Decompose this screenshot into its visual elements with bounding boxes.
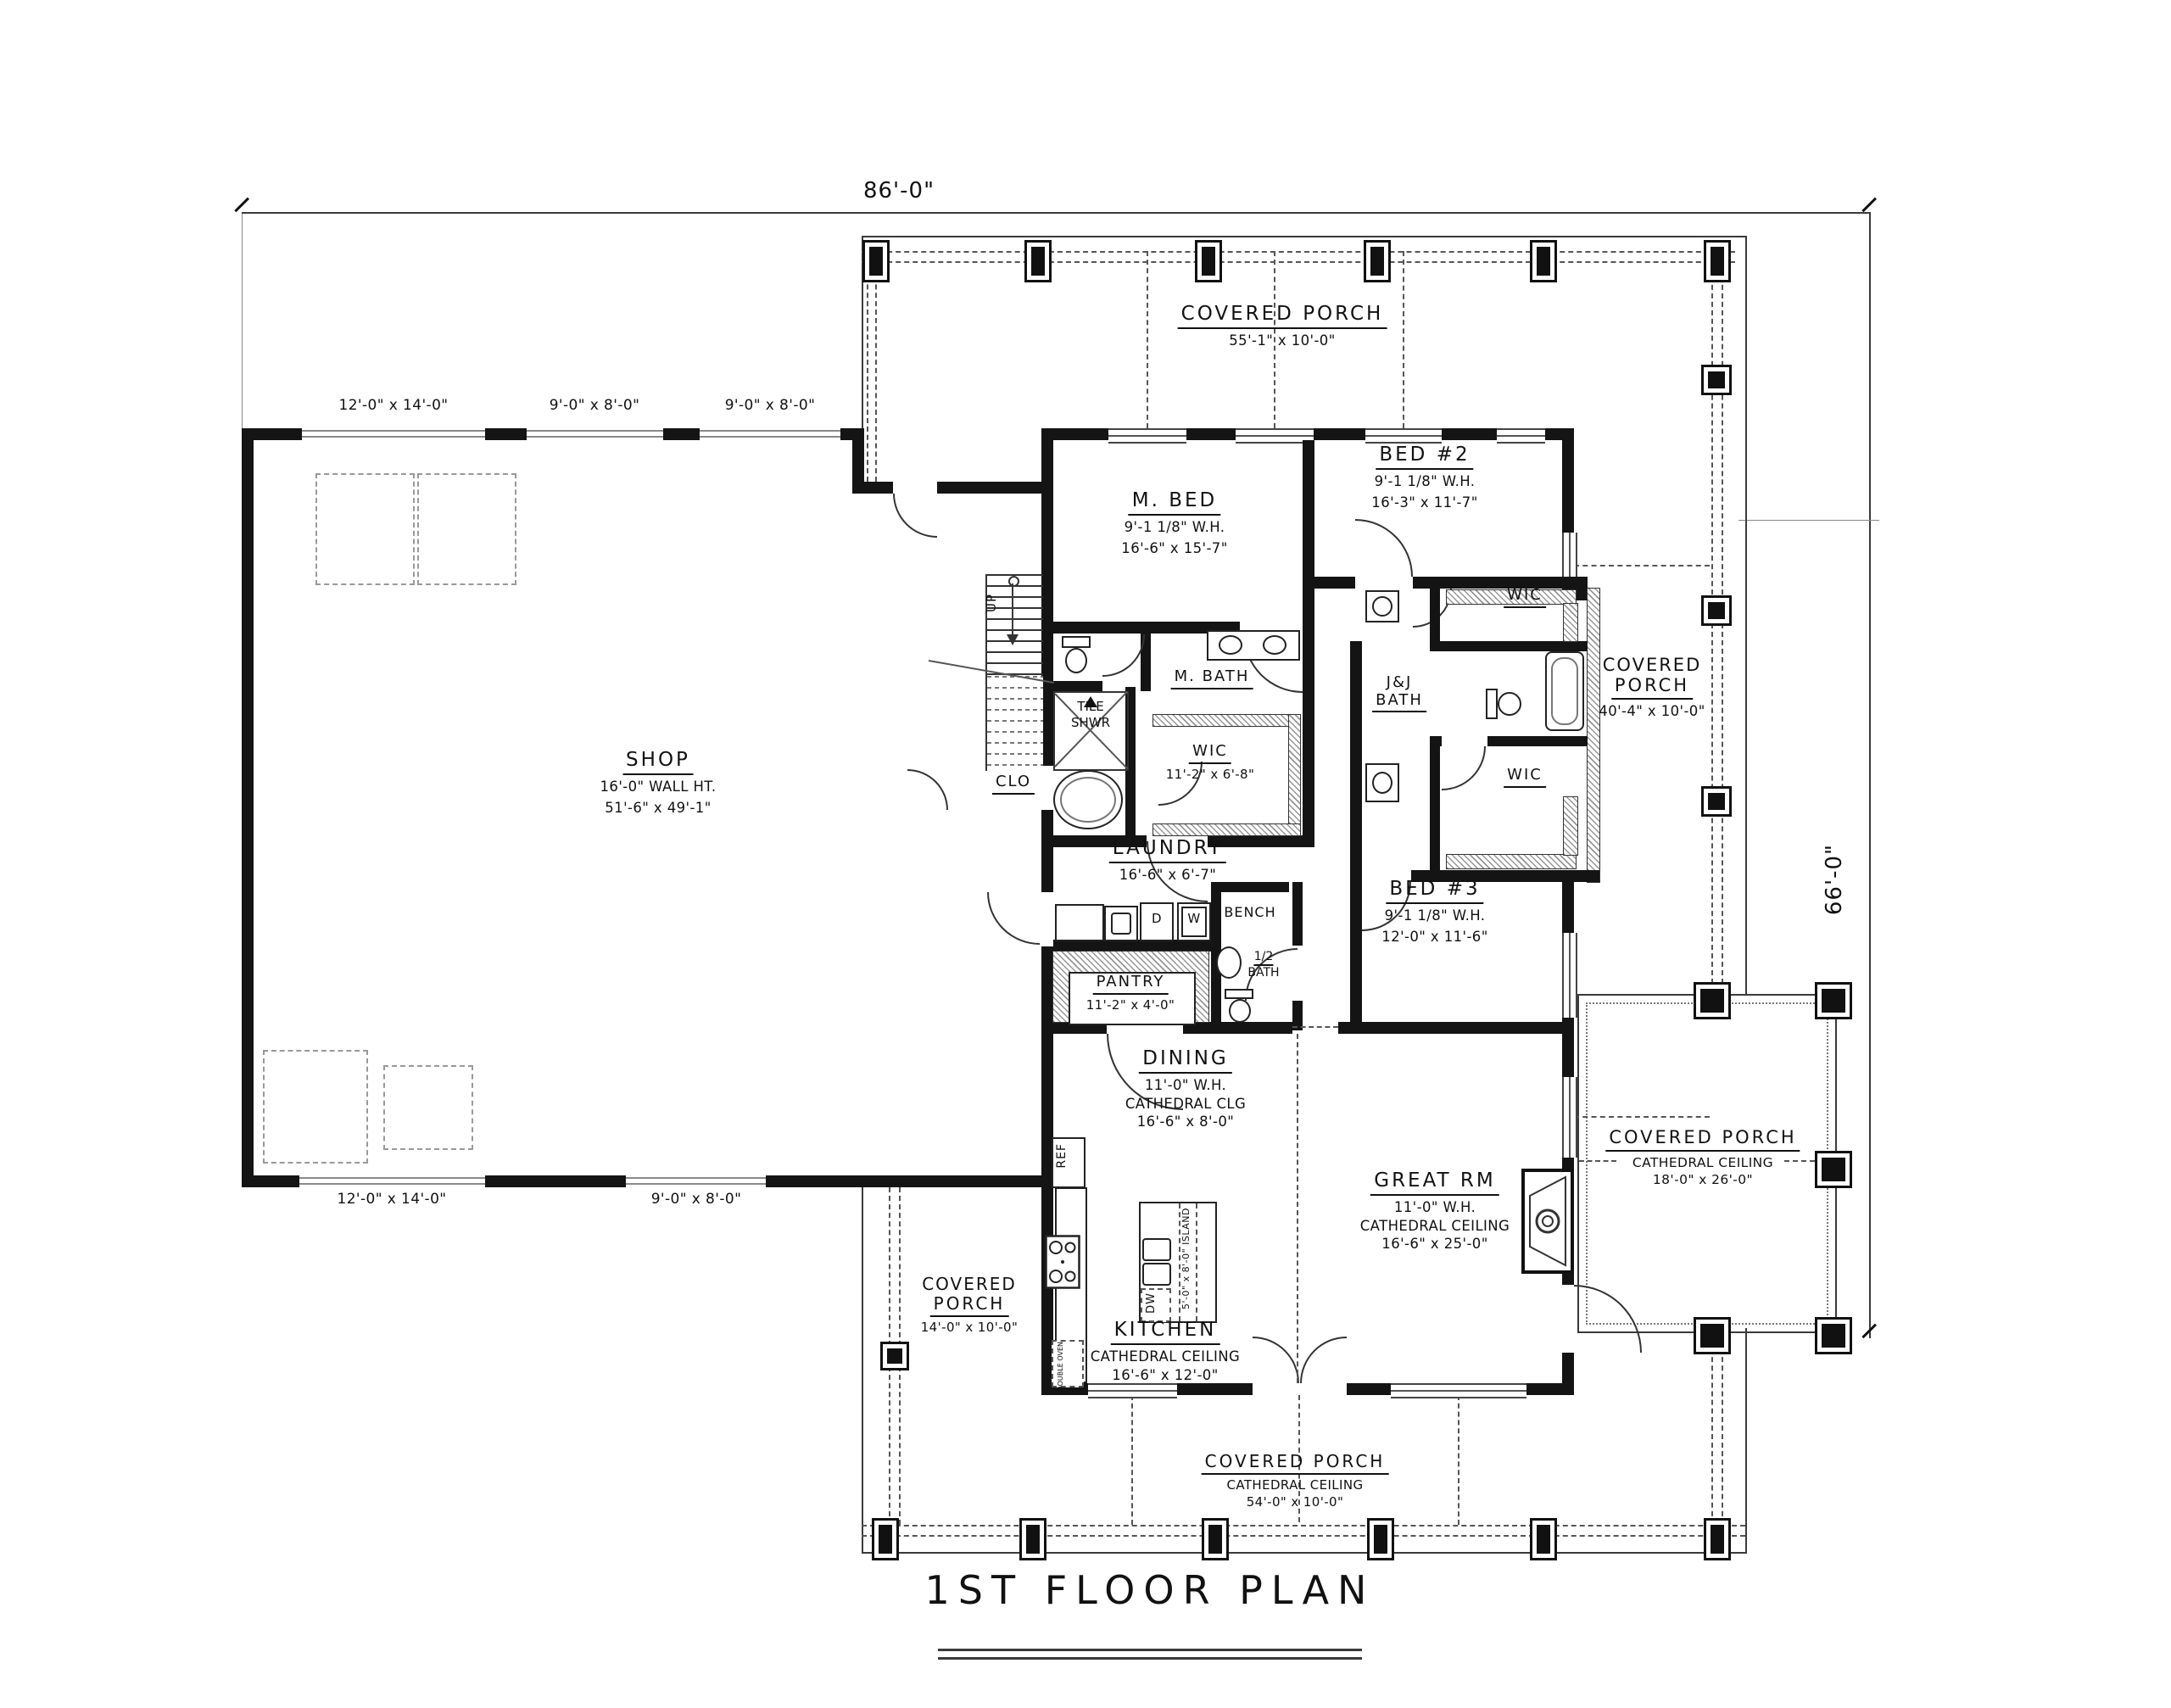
porch-beam-dashed bbox=[875, 251, 877, 482]
dim-tick bbox=[234, 198, 248, 212]
porch-post bbox=[1694, 982, 1731, 1019]
right-dimension-line bbox=[1869, 212, 1871, 1338]
porch-beam-dashed bbox=[1711, 1340, 1713, 1533]
room-label-pantry: PANTRY 11'-2" x 4'-0" bbox=[1086, 974, 1175, 1013]
wall bbox=[1442, 428, 1497, 440]
shop-size: 51'-6" x 49'-1" bbox=[600, 799, 717, 817]
wall bbox=[242, 428, 254, 1187]
room-label-wic-bed2: WIC bbox=[1504, 587, 1546, 608]
stair-arrow-head bbox=[1007, 634, 1019, 645]
wall bbox=[1338, 1022, 1574, 1034]
laundry-sink-icon bbox=[1104, 906, 1138, 941]
tub-icon bbox=[1545, 651, 1584, 731]
island-sink-icon bbox=[1142, 1238, 1171, 1261]
porch-post bbox=[1701, 786, 1732, 817]
projection-dash bbox=[1131, 1395, 1133, 1525]
porch-post bbox=[1530, 1518, 1557, 1560]
garage-door bbox=[626, 1177, 766, 1185]
porch-label-top: COVERED PORCH 55'-1" x 10'-0" bbox=[1178, 304, 1387, 350]
projection-dash bbox=[1458, 1395, 1459, 1525]
sink-icon bbox=[1216, 946, 1242, 979]
porch-post bbox=[862, 240, 890, 282]
door-arc bbox=[1300, 1337, 1347, 1383]
overhead-door-track bbox=[383, 1065, 473, 1150]
wall bbox=[1041, 810, 1053, 892]
door-arc bbox=[893, 494, 937, 538]
closet-shelf-hatch bbox=[1564, 604, 1577, 641]
porch-post bbox=[1704, 1518, 1731, 1560]
wall bbox=[1177, 1383, 1253, 1395]
toilet-tank-icon bbox=[1062, 636, 1091, 648]
room-label-bed3: BED #3 9'-1 1/8" W.H. 12'-0" x 11'-6" bbox=[1381, 879, 1487, 946]
sink-icon bbox=[1219, 635, 1242, 655]
door-arc bbox=[907, 769, 948, 810]
porch-edge-bottomleft bbox=[862, 1187, 863, 1554]
closet-shelf-hatch bbox=[1153, 715, 1300, 726]
shop-door-dim: 12'-0" x 14'-0" bbox=[338, 397, 448, 414]
toilet-bowl-icon bbox=[1498, 692, 1521, 716]
wall bbox=[1350, 870, 1362, 882]
wall bbox=[1487, 736, 1588, 746]
toilet-bowl-icon bbox=[1229, 999, 1251, 1023]
wall bbox=[766, 1175, 1041, 1187]
door-arc bbox=[987, 892, 1040, 945]
door-arc bbox=[1442, 746, 1486, 790]
porch-label-left: COVERED PORCH 14'-0" x 10'-0" bbox=[921, 1274, 1019, 1337]
window bbox=[1562, 933, 1577, 1018]
porch-post bbox=[1024, 240, 1052, 282]
porch-post bbox=[1019, 1518, 1046, 1560]
porch-post bbox=[880, 1342, 909, 1370]
wall bbox=[1183, 1022, 1292, 1034]
wall bbox=[1053, 681, 1102, 691]
porch-edge-right-lower bbox=[1745, 1328, 1747, 1554]
toilet-bowl-icon bbox=[1065, 648, 1087, 673]
room-label-mbath: M. BATH bbox=[1171, 668, 1253, 689]
wall bbox=[1526, 1383, 1574, 1395]
sink-icon bbox=[1372, 596, 1392, 617]
porch-post bbox=[1364, 240, 1391, 282]
overall-height-dim: 66'-0" bbox=[1822, 844, 1847, 915]
window bbox=[1562, 1077, 1577, 1158]
wall bbox=[663, 428, 700, 440]
wall bbox=[1350, 882, 1362, 1034]
projection-dash bbox=[1574, 565, 1710, 567]
window bbox=[1108, 428, 1186, 444]
overhead-door-track bbox=[263, 1050, 368, 1164]
door-arc bbox=[1355, 519, 1413, 577]
porch-beam-dashed bbox=[862, 1535, 1745, 1537]
porch-post bbox=[1701, 595, 1732, 626]
room-label-laundry: LAUNDRY 16'-6" x 6'-7" bbox=[1109, 838, 1226, 885]
shop-wall-height: 16'-0" WALL HT. bbox=[600, 778, 717, 795]
room-label-jjbath: J&J BATH bbox=[1372, 673, 1426, 712]
stair-newel bbox=[1008, 576, 1019, 587]
wall bbox=[242, 1175, 299, 1187]
wall bbox=[1303, 440, 1314, 687]
porch-label-big-right: COVERED PORCH CATHEDRAL CEILING 18'-0" x… bbox=[1605, 1128, 1800, 1188]
double-oven-label: DOUBLE OVEN bbox=[1057, 1342, 1064, 1392]
room-label-bed2: BED #2 9'-1 1/8" W.H. 16'-3" x 11'-7" bbox=[1371, 444, 1477, 511]
porch-beam-dashed bbox=[862, 261, 1735, 263]
porch-post bbox=[1694, 1317, 1731, 1354]
porch-post bbox=[1701, 365, 1732, 395]
porch-post bbox=[1367, 1518, 1394, 1560]
wall bbox=[1562, 882, 1574, 933]
wall bbox=[1303, 687, 1314, 835]
island-size-label: 5'-0" x 8'-0" ISLAND bbox=[1180, 1208, 1192, 1309]
closet-shelf-hatch bbox=[1564, 797, 1577, 855]
porch-post bbox=[872, 1518, 899, 1560]
tub-icon bbox=[1053, 770, 1123, 829]
sink-icon bbox=[1372, 772, 1392, 794]
wall bbox=[1041, 428, 1108, 440]
floor-plan-sheet: 86'-0" 66'-0" bbox=[0, 0, 2171, 1708]
room-label-bench: BENCH bbox=[1224, 904, 1275, 920]
shop-door-dim: 9'-0" x 8'-0" bbox=[550, 397, 640, 414]
fireplace-icon bbox=[1521, 1169, 1574, 1274]
dim-tick bbox=[1861, 198, 1876, 212]
door-arc bbox=[1102, 634, 1145, 677]
wall bbox=[1041, 440, 1053, 766]
leader-dash bbox=[1579, 1160, 1616, 1162]
open-plan-dash bbox=[1292, 1026, 1338, 1028]
porch-edge-bottom bbox=[862, 1552, 1747, 1554]
porch-post bbox=[1530, 240, 1557, 282]
wall bbox=[1562, 440, 1574, 533]
dim-extension-right bbox=[1738, 520, 1879, 521]
toilet-tank-icon bbox=[1486, 689, 1498, 719]
title-underline bbox=[938, 1657, 1362, 1660]
window bbox=[1391, 1383, 1526, 1398]
stairs-dashed bbox=[985, 676, 1043, 771]
overall-width-dim: 86'-0" bbox=[863, 178, 935, 204]
wall bbox=[485, 428, 527, 440]
wall bbox=[1314, 428, 1365, 440]
porch-label-bottom: COVERED PORCH CATHEDRAL CEILING 54'-0" x… bbox=[1202, 1452, 1389, 1510]
island-sink-icon bbox=[1142, 1263, 1171, 1286]
garage-door bbox=[527, 430, 663, 438]
stairs-up-label: UP bbox=[984, 594, 999, 612]
dryer-label: D bbox=[1152, 911, 1162, 926]
stairs-solid bbox=[985, 574, 1043, 676]
room-label-clo: CLO bbox=[992, 773, 1035, 795]
room-label-tileshwr: TILE SHWR bbox=[1071, 699, 1110, 731]
closet-shelf-hatch bbox=[1447, 855, 1576, 868]
laundry-counter bbox=[1055, 904, 1104, 941]
projection-dash bbox=[1147, 251, 1148, 428]
garage-door bbox=[700, 430, 840, 438]
wall bbox=[1347, 1383, 1391, 1395]
wall bbox=[1314, 577, 1355, 589]
plan-title: 1ST FLOOR PLAN bbox=[925, 1567, 1376, 1613]
door-arc bbox=[1253, 1337, 1299, 1383]
washer-label: W bbox=[1187, 911, 1200, 926]
title-underline bbox=[938, 1649, 1362, 1651]
wall bbox=[1186, 428, 1236, 440]
porch-label-right: COVERED PORCH 40'-4" x 10'-0" bbox=[1599, 655, 1705, 721]
room-label-kitchen: KITCHEN CATHEDRAL CEILING 16'-6" x 12'-0… bbox=[1091, 1320, 1240, 1384]
open-plan-dash bbox=[1297, 1034, 1298, 1383]
wall bbox=[1350, 641, 1362, 882]
leader-dash bbox=[1784, 1160, 1815, 1162]
wall bbox=[1430, 641, 1588, 651]
closet-shelf-hatch bbox=[1289, 715, 1300, 835]
porch-post bbox=[1704, 240, 1731, 282]
wall bbox=[1292, 882, 1303, 946]
room-label-halfbath: 1/2 BATH bbox=[1247, 950, 1279, 980]
window bbox=[1497, 428, 1545, 444]
dishwasher-label: DW bbox=[1145, 1292, 1158, 1314]
porch-post bbox=[1195, 240, 1222, 282]
shop-door-dim: 12'-0" x 14'-0" bbox=[337, 1191, 446, 1208]
wall bbox=[858, 482, 893, 494]
stair-arrow-line bbox=[1012, 583, 1013, 636]
garage-door bbox=[299, 1177, 485, 1185]
wall-hatched bbox=[1588, 589, 1599, 882]
wall bbox=[1053, 940, 1211, 952]
window bbox=[1088, 1383, 1177, 1398]
wall bbox=[485, 1175, 626, 1187]
porch-edge-right-upper bbox=[1745, 236, 1747, 996]
shop-door-dim: 9'-0" x 8'-0" bbox=[725, 397, 816, 414]
room-label-greatrm: GREAT RM 11'-0" W.H. CATHEDRAL CEILING 1… bbox=[1360, 1170, 1510, 1253]
sink-icon bbox=[1263, 635, 1286, 655]
top-dimension-line bbox=[242, 212, 1871, 214]
projection-dash bbox=[1574, 1116, 1710, 1118]
wall bbox=[937, 482, 1041, 494]
island-overhang-dash bbox=[1196, 1203, 1197, 1321]
porch-post bbox=[1202, 1518, 1229, 1560]
porch-beam-dashed bbox=[862, 251, 1735, 253]
porch-post bbox=[1815, 982, 1852, 1019]
wall bbox=[1545, 428, 1574, 440]
wall bbox=[1141, 622, 1151, 691]
wall bbox=[1430, 736, 1440, 882]
porch-post bbox=[1815, 1151, 1852, 1188]
porch-beam-dashed bbox=[862, 1525, 1745, 1527]
porch-edge-top bbox=[862, 236, 1747, 237]
wall bbox=[1430, 589, 1440, 651]
cooktop-icon bbox=[1045, 1235, 1080, 1289]
closet-shelf-hatch bbox=[1153, 824, 1300, 835]
shop-door-dim: 9'-0" x 8'-0" bbox=[651, 1191, 742, 1208]
porch-post bbox=[1815, 1317, 1852, 1354]
room-label-shop: SHOP 16'-0" WALL HT. 51'-6" x 49'-1" bbox=[600, 750, 717, 817]
porch-beam-dashed bbox=[867, 251, 868, 482]
wall bbox=[1413, 577, 1588, 589]
refrigerator-label: REF bbox=[1055, 1143, 1069, 1169]
overhead-door-track bbox=[315, 473, 415, 585]
window bbox=[1365, 428, 1442, 444]
room-label-wic-bed3: WIC bbox=[1504, 767, 1546, 788]
porch-beam-dashed bbox=[1722, 1340, 1723, 1533]
room-label-dining: DINING 11'-0" W.H. CATHEDRAL CLG 16'-6" … bbox=[1125, 1048, 1246, 1131]
room-label-wic-master: WIC 11'-2" x 6'-8" bbox=[1166, 743, 1255, 783]
dim-extension-left bbox=[242, 214, 243, 428]
projection-dash bbox=[1403, 251, 1404, 428]
room-label-mbed: M. BED 9'-1 1/8" W.H. 16'-6" x 15'-7" bbox=[1121, 490, 1227, 557]
shop-name: SHOP bbox=[622, 750, 694, 775]
overhead-door-track bbox=[417, 473, 516, 585]
toilet-tank-icon bbox=[1225, 989, 1253, 999]
wall bbox=[246, 428, 302, 440]
garage-door bbox=[302, 430, 485, 438]
